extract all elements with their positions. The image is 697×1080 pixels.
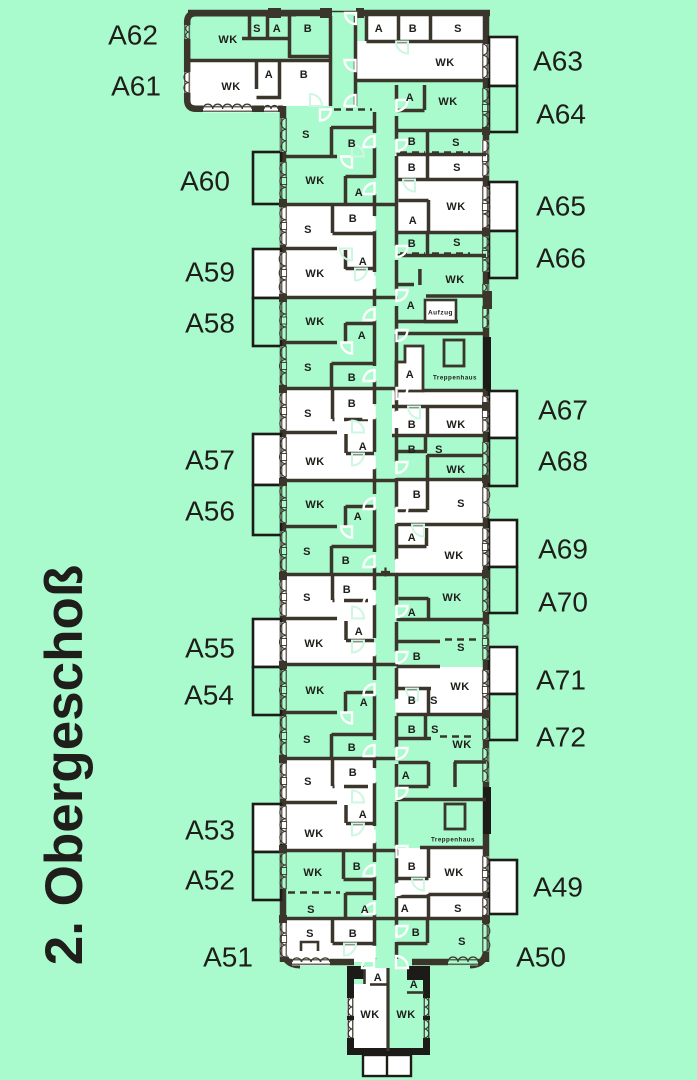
svg-text:WK: WK bbox=[444, 550, 463, 562]
svg-text:A: A bbox=[359, 256, 367, 268]
svg-text:A58: A58 bbox=[185, 307, 235, 338]
svg-text:S: S bbox=[303, 734, 311, 746]
svg-text:WK: WK bbox=[303, 867, 322, 879]
svg-text:A66: A66 bbox=[536, 242, 586, 273]
svg-text:S: S bbox=[452, 137, 460, 149]
svg-text:WK: WK bbox=[305, 175, 324, 187]
svg-text:A: A bbox=[406, 369, 414, 381]
svg-text:B: B bbox=[300, 69, 308, 81]
svg-text:A61: A61 bbox=[111, 70, 161, 101]
svg-text:B: B bbox=[408, 419, 416, 431]
svg-text:WK: WK bbox=[450, 681, 469, 693]
svg-text:WK: WK bbox=[435, 57, 454, 69]
svg-text:S: S bbox=[304, 224, 312, 236]
svg-text:S: S bbox=[430, 695, 438, 707]
svg-text:B: B bbox=[408, 724, 416, 736]
svg-text:WK: WK bbox=[221, 81, 240, 93]
svg-text:A51: A51 bbox=[203, 941, 253, 972]
svg-text:A56: A56 bbox=[185, 495, 235, 526]
svg-text:WK: WK bbox=[446, 201, 465, 213]
svg-text:A49: A49 bbox=[533, 871, 583, 902]
svg-text:A: A bbox=[354, 511, 362, 523]
svg-text:B: B bbox=[408, 861, 416, 873]
svg-text:A: A bbox=[408, 607, 416, 619]
svg-text:S: S bbox=[458, 936, 466, 948]
svg-text:A71: A71 bbox=[536, 664, 586, 695]
svg-text:WK: WK bbox=[446, 419, 465, 431]
svg-text:A: A bbox=[359, 809, 367, 821]
svg-text:WK: WK bbox=[304, 638, 323, 650]
svg-text:A: A bbox=[402, 770, 410, 782]
svg-text:B: B bbox=[349, 928, 357, 940]
svg-text:A64: A64 bbox=[536, 98, 586, 129]
svg-text:A67: A67 bbox=[538, 394, 588, 425]
svg-text:A55: A55 bbox=[185, 632, 235, 663]
svg-text:B: B bbox=[348, 742, 356, 754]
svg-text:A: A bbox=[406, 92, 414, 104]
svg-text:B: B bbox=[408, 444, 416, 456]
svg-text:A52: A52 bbox=[185, 864, 235, 895]
svg-text:A65: A65 bbox=[536, 190, 586, 221]
svg-text:A59: A59 bbox=[185, 256, 235, 287]
svg-text:B: B bbox=[408, 238, 416, 250]
svg-text:S: S bbox=[454, 23, 462, 35]
svg-text:S: S bbox=[303, 592, 311, 604]
svg-text:A: A bbox=[265, 69, 273, 81]
svg-text:S: S bbox=[453, 237, 461, 249]
svg-text:A60: A60 bbox=[180, 165, 230, 196]
svg-text:A57: A57 bbox=[185, 444, 235, 475]
svg-text:A: A bbox=[374, 972, 382, 984]
svg-text:A: A bbox=[358, 330, 366, 342]
svg-text:B: B bbox=[413, 651, 421, 663]
svg-text:S: S bbox=[457, 498, 465, 510]
svg-text:A72: A72 bbox=[536, 721, 586, 752]
svg-text:WK: WK bbox=[396, 1009, 415, 1021]
svg-text:S: S bbox=[253, 23, 261, 35]
svg-text:WK: WK bbox=[305, 456, 324, 468]
svg-text:B: B bbox=[304, 23, 312, 35]
svg-text:A: A bbox=[361, 904, 369, 916]
svg-text:WK: WK bbox=[305, 685, 324, 697]
svg-text:Treppenhaus: Treppenhaus bbox=[433, 375, 477, 382]
svg-text:A: A bbox=[359, 441, 367, 453]
svg-text:A: A bbox=[375, 23, 383, 35]
svg-text:B: B bbox=[408, 162, 416, 174]
svg-text:A: A bbox=[409, 215, 417, 227]
svg-text:B: B bbox=[348, 138, 356, 150]
svg-text:WK: WK bbox=[305, 268, 324, 280]
svg-text:A68: A68 bbox=[538, 445, 588, 476]
svg-text:S: S bbox=[304, 776, 312, 788]
svg-text:WK: WK bbox=[360, 1009, 379, 1021]
svg-text:A: A bbox=[360, 697, 368, 709]
svg-text:B: B bbox=[342, 555, 350, 567]
svg-text:A63: A63 bbox=[533, 45, 583, 76]
svg-text:WK: WK bbox=[445, 274, 464, 286]
svg-text:A54: A54 bbox=[184, 679, 234, 710]
svg-text:A50: A50 bbox=[516, 941, 566, 972]
svg-text:B: B bbox=[413, 489, 421, 501]
svg-text:B: B bbox=[343, 584, 351, 596]
svg-text:S: S bbox=[304, 408, 312, 420]
svg-text:B: B bbox=[348, 398, 356, 410]
svg-text:S: S bbox=[454, 903, 462, 915]
svg-text:S: S bbox=[306, 928, 314, 940]
svg-text:A: A bbox=[355, 187, 363, 199]
svg-text:A: A bbox=[408, 532, 416, 544]
svg-text:B: B bbox=[349, 213, 357, 225]
svg-text:S: S bbox=[307, 904, 315, 916]
svg-text:A69: A69 bbox=[538, 533, 588, 564]
svg-text:S: S bbox=[431, 724, 439, 736]
svg-text:A: A bbox=[273, 23, 281, 35]
svg-text:Treppenhaus: Treppenhaus bbox=[431, 837, 475, 844]
svg-text:WK: WK bbox=[305, 316, 324, 328]
svg-text:2. Obergeschoß: 2. Obergeschoß bbox=[35, 565, 94, 966]
svg-text:S: S bbox=[435, 444, 443, 456]
svg-text:WK: WK bbox=[452, 739, 471, 751]
svg-text:WK: WK bbox=[218, 34, 237, 46]
svg-text:B: B bbox=[349, 767, 357, 779]
svg-text:WK: WK bbox=[438, 96, 457, 108]
svg-text:WK: WK bbox=[446, 464, 465, 476]
svg-text:A53: A53 bbox=[185, 814, 235, 845]
svg-text:S: S bbox=[457, 642, 465, 654]
svg-text:B: B bbox=[408, 136, 416, 148]
svg-text:WK: WK bbox=[442, 592, 461, 604]
svg-text:WK: WK bbox=[444, 867, 463, 879]
svg-text:B: B bbox=[409, 23, 417, 35]
svg-text:WK: WK bbox=[305, 499, 324, 511]
svg-text:A: A bbox=[401, 903, 409, 915]
svg-text:S: S bbox=[304, 362, 312, 374]
svg-text:B: B bbox=[348, 372, 356, 384]
svg-text:WK: WK bbox=[304, 828, 323, 840]
svg-text:A: A bbox=[407, 300, 415, 312]
svg-text:A: A bbox=[410, 979, 418, 991]
svg-text:S: S bbox=[303, 546, 311, 558]
svg-text:B: B bbox=[412, 927, 420, 939]
svg-text:A70: A70 bbox=[538, 586, 588, 617]
svg-text:S: S bbox=[302, 129, 310, 141]
svg-text:B: B bbox=[408, 695, 416, 707]
svg-text:S: S bbox=[453, 162, 461, 174]
svg-text:A: A bbox=[355, 626, 363, 638]
svg-text:A62: A62 bbox=[108, 19, 158, 50]
svg-text:B: B bbox=[353, 861, 361, 873]
svg-text:Aufzug: Aufzug bbox=[428, 310, 453, 317]
